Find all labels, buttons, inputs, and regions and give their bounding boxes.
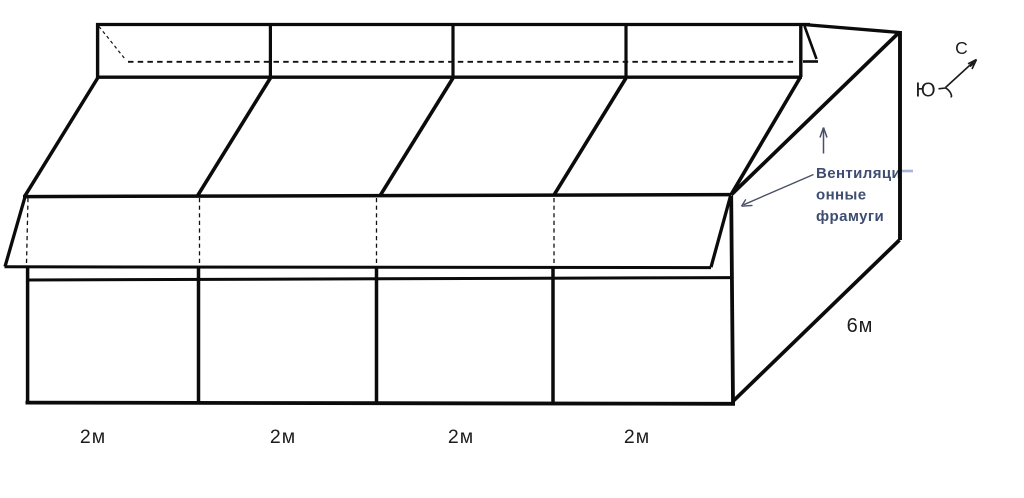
svg-text:2м: 2м [448, 426, 474, 448]
svg-text:2м: 2м [80, 426, 106, 448]
svg-text:2м: 2м [624, 426, 650, 448]
svg-text:онные: онные [816, 187, 866, 204]
svg-text:Ю: Ю [915, 80, 935, 102]
svg-text:фрамуги: фрамуги [816, 208, 884, 225]
svg-text:С: С [955, 38, 968, 58]
svg-text:2м: 2м [270, 426, 296, 448]
svg-text:6м: 6м [847, 315, 874, 337]
svg-text:Вентиляци: Вентиляци [816, 165, 901, 182]
